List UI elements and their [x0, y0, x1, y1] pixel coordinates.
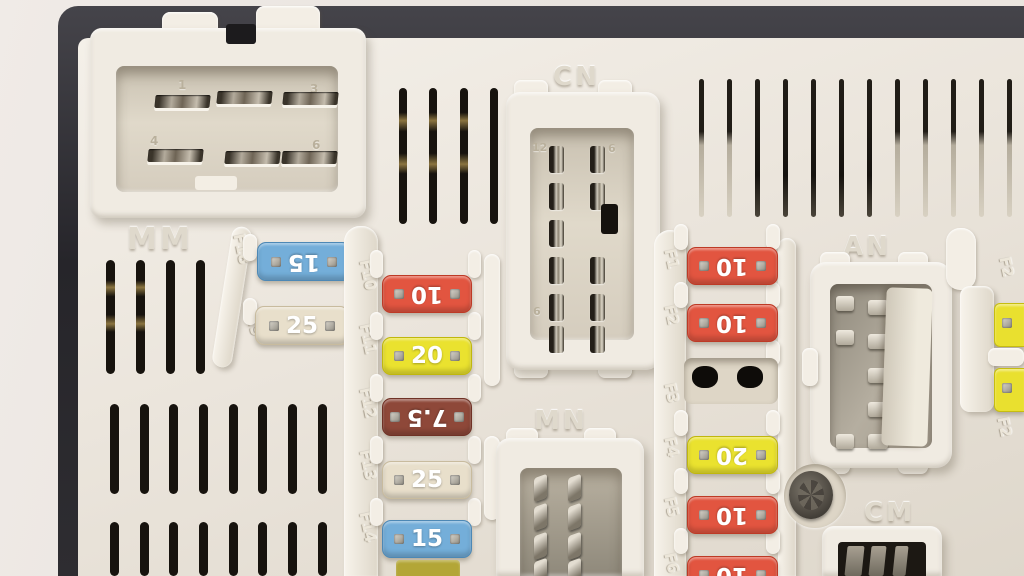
connector-pin: [549, 326, 564, 353]
fuse-f1: 10: [687, 247, 778, 285]
fuse-contact: [450, 475, 460, 485]
fuse-f19: 25: [255, 306, 349, 345]
fuse-holder-tab: [370, 498, 383, 526]
fuse-amp: 7.5: [407, 404, 448, 430]
fuse-f13: 25: [382, 461, 472, 499]
fuse-f4: 20: [687, 436, 778, 474]
connector-pin: [534, 532, 547, 561]
fuse-contact: [394, 289, 404, 299]
torx-screw: [789, 471, 833, 519]
fuse-terminal-hole: [692, 366, 718, 388]
vent-slot: [895, 79, 900, 217]
blade-terminal: [844, 546, 864, 576]
fuse-holder-tab: [674, 528, 688, 554]
vent-slot: [199, 522, 208, 576]
vent-slot: [258, 404, 267, 494]
fuse-f2: 10: [687, 304, 778, 342]
fuse-holder-tab: [674, 282, 688, 308]
divider-bar: [484, 254, 500, 386]
fuse-contact: [1002, 383, 1012, 393]
fuse-partial: [396, 560, 460, 576]
fuse-contact: [756, 570, 766, 576]
fuse-contact: [450, 351, 460, 361]
connector-label-an: AN: [843, 232, 891, 262]
vent-slot: [839, 79, 844, 217]
fuse-f12: 7.5: [382, 398, 472, 436]
fuse-contact: [756, 510, 766, 520]
vent-slot: [727, 79, 732, 217]
connector-pin: [568, 474, 581, 503]
vent-slot: [783, 79, 788, 217]
pin-number: 1: [178, 78, 186, 92]
fuse-amp: 10: [716, 562, 748, 576]
vent-slot: [490, 88, 498, 224]
fuse-contact: [699, 570, 709, 576]
fuse-f11: 20: [382, 337, 472, 375]
fuse-terminal-hole: [737, 366, 763, 388]
cn-keyway: [601, 204, 618, 234]
vent-slot: [288, 522, 297, 576]
fuse-f5: 10: [687, 496, 778, 534]
fuse-holder-tab: [370, 312, 383, 340]
connector-pin: [836, 330, 854, 345]
blade-terminal: [868, 546, 886, 576]
blade-terminal: [892, 546, 908, 576]
connector-pin: [549, 294, 564, 321]
fuse-holder-tab: [674, 224, 688, 250]
connector-pin: [549, 257, 564, 284]
fuse-rail: [778, 238, 796, 576]
connector-pin: [590, 146, 605, 173]
fuse-holder-tab: [468, 498, 481, 526]
fuse-holder-tab: [370, 436, 383, 464]
fuse-holder-tab: [468, 312, 481, 340]
vent-slot: [867, 79, 872, 217]
fuse-amp: 25: [411, 467, 443, 493]
fuse-contact: [454, 412, 464, 422]
connector-label-cn: CN: [553, 62, 600, 92]
vent-slot: [1007, 79, 1012, 217]
fuse-f6: 10: [687, 556, 778, 576]
vent-slot: [140, 404, 149, 494]
fuse-amp: 15: [288, 249, 320, 275]
an-connector-cavity: [830, 284, 932, 448]
fuse-contact: [699, 261, 709, 271]
fuse-contact: [1002, 318, 1012, 328]
vent-slot: [288, 404, 297, 494]
fuse-holder-tab: [674, 410, 688, 436]
vent-slot: [699, 79, 704, 217]
connector-pin: [534, 558, 547, 576]
blade-terminal: [282, 92, 338, 105]
fuse-partial: [994, 303, 1024, 347]
pin-number: 6: [533, 305, 541, 318]
vent-slot: [399, 88, 407, 224]
vent-slot: [258, 522, 267, 576]
vent-slot: [979, 79, 984, 217]
fuse-holder-tab: [468, 250, 481, 278]
vent-slot: [110, 522, 119, 576]
connector-pin: [549, 146, 564, 173]
relay-socket-cavity: 1 3 4 6: [116, 66, 338, 192]
empty-fuse-slot-f3: [684, 358, 778, 404]
blade-terminal: [147, 149, 203, 162]
fuse-amp: 10: [716, 253, 748, 279]
vent-slot: [106, 260, 115, 374]
an-cover-plate: [881, 287, 932, 447]
vent-slot: [199, 404, 208, 494]
fuse-contact: [327, 257, 337, 267]
vent-slot: [229, 522, 238, 576]
vent-slot: [169, 404, 178, 494]
fuse-amp: 10: [411, 281, 443, 307]
fuse-box-photo: 1 3 4 6 MM F18 F19 15: [0, 0, 1024, 576]
connector-pin: [568, 558, 581, 576]
fuse-holder-tab: [988, 348, 1024, 366]
fuse-holder-tab: [243, 234, 257, 261]
pin-number: 4: [150, 134, 158, 148]
fuse-f14: 15: [382, 520, 472, 558]
vent-slot: [196, 260, 205, 374]
connector-pin: [590, 257, 605, 284]
fuse-holder-tab: [674, 468, 688, 494]
fuse-rail: [960, 286, 994, 412]
fuse-f18: 15: [257, 242, 351, 281]
fuse-f10: 10: [382, 275, 472, 313]
blade-terminal: [224, 151, 280, 164]
fuse-amp: 25: [286, 313, 318, 339]
connector-pin: [836, 434, 854, 449]
blade-terminal: [216, 91, 272, 104]
fuse-contact: [756, 261, 766, 271]
vent-slot: [318, 404, 327, 494]
fuse-contact: [699, 450, 709, 460]
connector-pin: [534, 503, 547, 532]
connector-label-mn: MN: [534, 406, 588, 436]
connector-pin: [568, 503, 581, 532]
fuse-amp: 15: [411, 526, 443, 552]
vent-slot: [923, 79, 928, 217]
connector-pin: [568, 532, 581, 561]
fuse-amp: 20: [411, 343, 443, 369]
connector-pin: [549, 183, 564, 210]
connector-pin: [590, 294, 605, 321]
connector-pin: [590, 326, 605, 353]
fuse-contact: [394, 534, 404, 544]
vent-slot: [429, 88, 437, 224]
fuse-contact: [450, 289, 460, 299]
fuse-amp: 20: [716, 442, 748, 468]
cavity-tab: [195, 176, 237, 190]
socket-notch: [226, 24, 256, 44]
pin-number: 6: [608, 142, 616, 155]
fuse-contact: [271, 257, 281, 267]
connector-label-cm: CM: [864, 498, 915, 528]
vent-slot: [229, 404, 238, 494]
fuse-contact: [699, 510, 709, 520]
pin-number: 12: [532, 141, 547, 154]
fuse-contact: [394, 351, 404, 361]
cn-connector-cavity: 12 6 6: [530, 128, 634, 340]
fuse-contact: [390, 412, 400, 422]
connector-label-mm: MM: [127, 222, 193, 257]
fuse-contact: [756, 450, 766, 460]
fuse-contact: [699, 318, 709, 328]
vent-slot: [460, 88, 468, 224]
fuse-holder-tab: [468, 436, 481, 464]
vent-slot: [169, 522, 178, 576]
fuse-holder-tab: [946, 228, 976, 290]
vent-slot: [755, 79, 760, 217]
fuse-amp: 10: [716, 502, 748, 528]
fuse-amp: 10: [716, 310, 748, 336]
fuse-contact: [269, 321, 279, 331]
vent-slot: [110, 404, 119, 494]
fuse-holder-tab: [370, 250, 383, 278]
vent-slot: [318, 522, 327, 576]
vent-slot: [811, 79, 816, 217]
vent-slot: [140, 522, 149, 576]
mn-connector-cavity: [520, 468, 622, 576]
fuse-contact: [325, 321, 335, 331]
vent-slot: [951, 79, 956, 217]
vent-slot: [166, 260, 175, 374]
pin-number: 6: [312, 138, 320, 152]
blade-terminal: [154, 95, 210, 108]
fuse-contact: [756, 318, 766, 328]
fuse-contact: [394, 475, 404, 485]
fuse-holder-tab: [370, 374, 383, 402]
fuse-contact: [450, 534, 460, 544]
cm-connector-cavity: [838, 542, 926, 576]
fuse-holder-tab: [468, 374, 481, 402]
blade-terminal: [281, 151, 337, 164]
fuse-holder-tab: [766, 410, 780, 436]
connector-key-tab: [802, 348, 818, 386]
connector-pin: [534, 474, 547, 503]
vent-slot: [136, 260, 145, 374]
connector-pin: [836, 296, 854, 311]
fuse-partial: [994, 368, 1024, 412]
connector-pin: [549, 220, 564, 247]
